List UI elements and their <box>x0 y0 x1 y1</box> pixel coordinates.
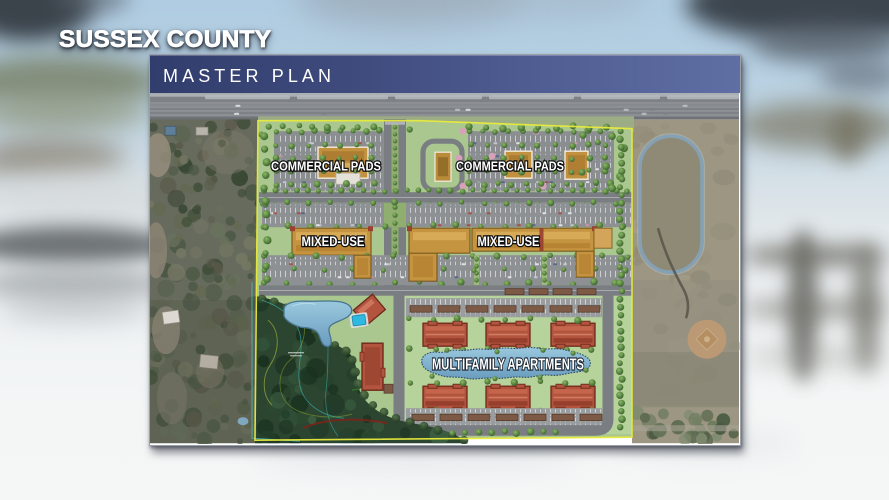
svg-text:MULTIFAMILY APARTMENTS: MULTIFAMILY APARTMENTS <box>432 357 584 374</box>
svg-text:COMMERCIAL PADS: COMMERCIAL PADS <box>271 160 381 174</box>
svg-text:MIXED-USE: MIXED-USE <box>478 234 540 249</box>
svg-text:MIXED-USE: MIXED-USE <box>302 234 365 249</box>
svg-text:COMMERCIAL PADS: COMMERCIAL PADS <box>456 160 564 174</box>
